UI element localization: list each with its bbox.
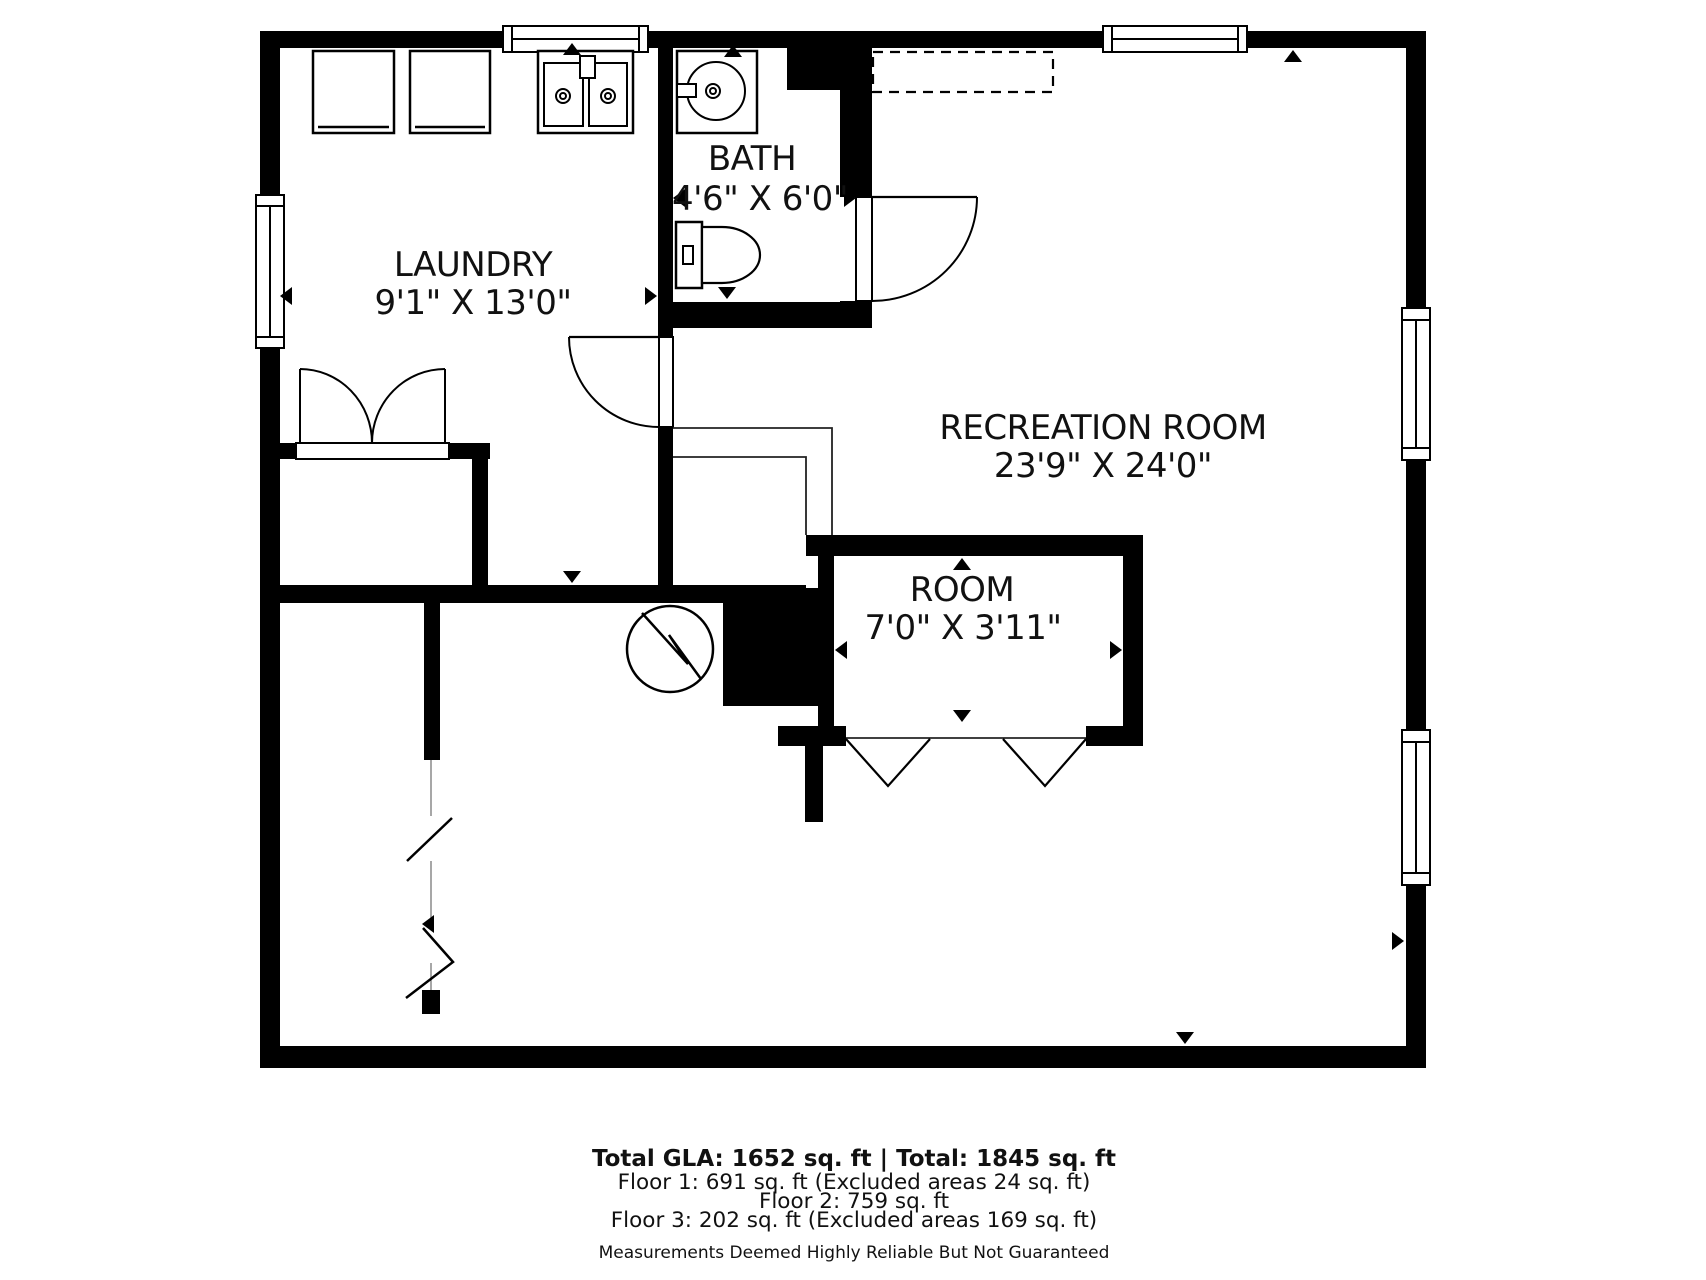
footer-floor-3: Floor 3: 202 sq. ft (Excluded areas 169 … xyxy=(611,1208,1097,1233)
wall-laundry-bath-lower xyxy=(658,427,673,603)
wall-top-middle xyxy=(648,31,1103,48)
dryer-icon xyxy=(410,51,490,133)
wall-top-right xyxy=(1247,31,1426,48)
laundry-dims: 9'1" X 13'0" xyxy=(374,283,571,323)
window-icon xyxy=(1402,308,1430,460)
recreation-dims: 23'9" X 24'0" xyxy=(994,446,1212,486)
wall-right-lower xyxy=(1406,885,1426,1068)
wall-left-lower xyxy=(260,348,280,1068)
bath-sink-icon xyxy=(677,51,757,133)
wall-bath-top-block xyxy=(787,45,872,90)
floor-plan: LAUNDRY 9'1" X 13'0" BATH 4'6" X 6'0" RE… xyxy=(0,0,1706,1280)
wall-room-stub-right xyxy=(1086,726,1143,746)
utility-meter-icon xyxy=(627,606,713,692)
wall-below-room xyxy=(805,746,823,822)
washer-icon xyxy=(313,51,394,133)
wall-room-stub-left xyxy=(778,726,846,746)
window-icon xyxy=(256,195,284,348)
wall-under-bath-block xyxy=(723,588,818,706)
wall-stair-cap xyxy=(422,990,440,1014)
wall-right-middle xyxy=(1406,460,1426,730)
wall-room-right xyxy=(1123,556,1143,746)
wall-room-left xyxy=(818,556,834,726)
wall-closet-right xyxy=(472,459,488,585)
wall-top-left xyxy=(260,31,503,48)
recreation-label: RECREATION ROOM xyxy=(939,408,1266,448)
wall-bath-bottom xyxy=(658,302,872,328)
bath-label: BATH xyxy=(708,139,796,179)
footer-disclaimer: Measurements Deemed Highly Reliable But … xyxy=(599,1243,1110,1263)
wall-bottom xyxy=(260,1046,1426,1068)
footer-total-gla: Total GLA: 1652 sq. ft | Total: 1845 sq.… xyxy=(592,1146,1116,1172)
laundry-label: LAUNDRY xyxy=(394,245,553,285)
wall-room-top xyxy=(806,535,1143,556)
laundry-sink-icon xyxy=(538,51,633,133)
room-label: ROOM xyxy=(910,570,1014,610)
room-dims: 7'0" X 3'11" xyxy=(864,608,1061,648)
wall-left-upper xyxy=(260,31,280,195)
wall-stair xyxy=(424,603,440,760)
bath-dims: 4'6" X 6'0" xyxy=(672,179,848,219)
wall-laundry-bath-upper xyxy=(658,48,673,337)
window-icon xyxy=(1402,730,1430,885)
floor-plan-sheet: LAUNDRY 9'1" X 13'0" BATH 4'6" X 6'0" RE… xyxy=(0,0,1706,1280)
wall-right-upper xyxy=(1406,31,1426,308)
window-icon xyxy=(1103,26,1247,52)
